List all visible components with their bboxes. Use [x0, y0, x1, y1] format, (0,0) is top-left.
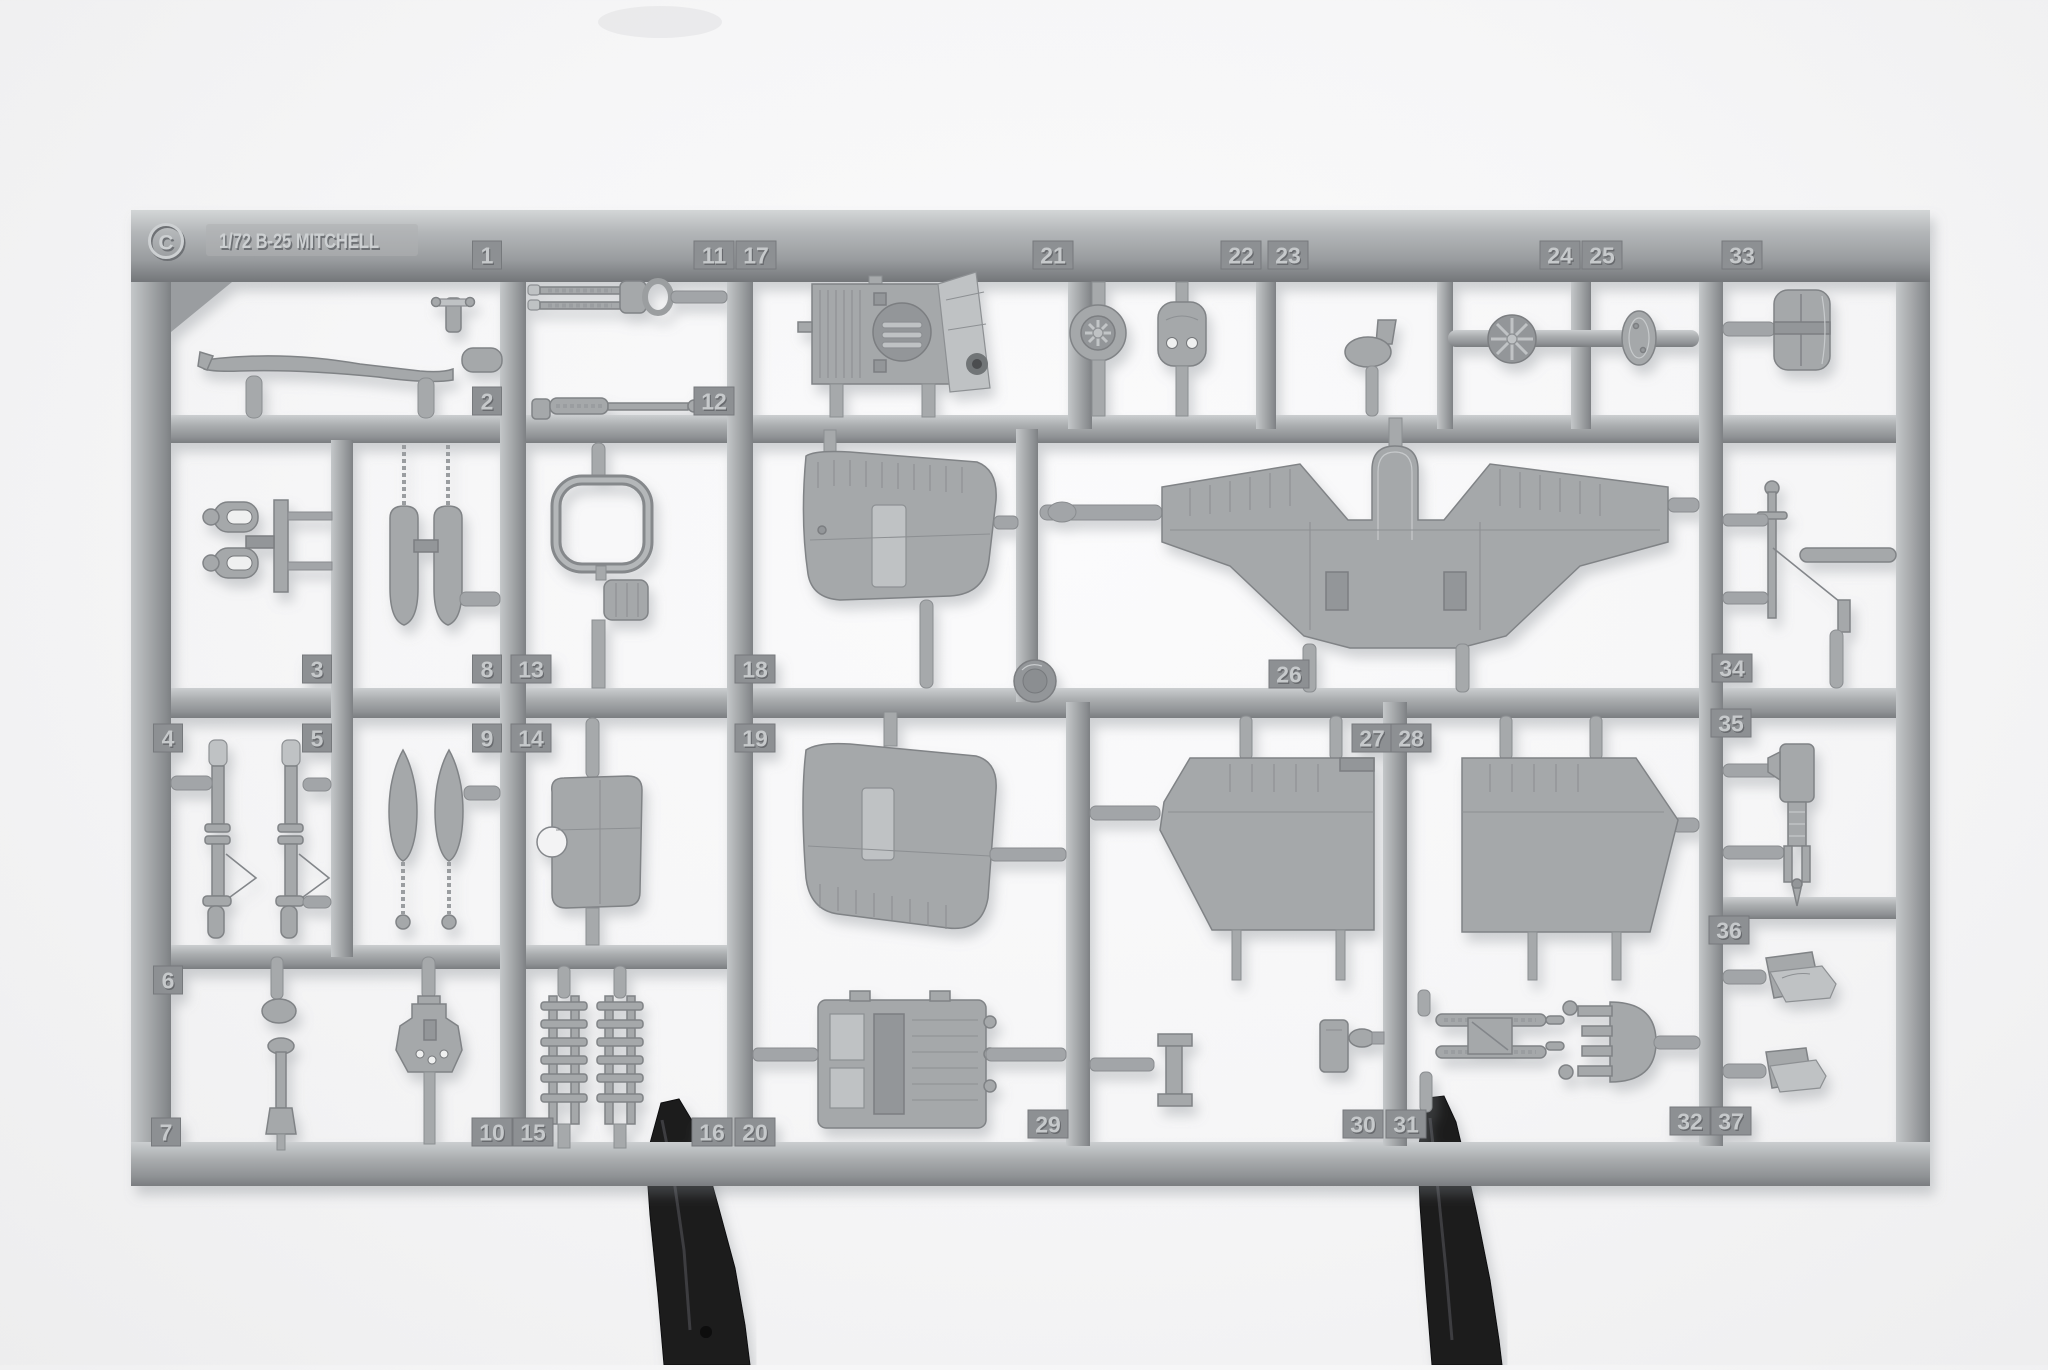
part-number-tab-8: 88	[473, 655, 502, 684]
part-number-tab-32: 3232	[1670, 1107, 1710, 1136]
part-number-tab-14: 1414	[511, 724, 551, 753]
rail-bottom	[131, 1142, 1930, 1186]
part-number-tab-4: 44	[154, 724, 183, 753]
svg-text:32: 32	[1677, 1109, 1703, 1135]
part-25-bulkhead-disc	[1622, 311, 1656, 365]
part-number-tab-18: 1818	[735, 655, 775, 684]
part-36-crew-seat	[1723, 952, 1836, 1002]
rail-vertical-0b	[331, 440, 353, 957]
part-number-tab-3: 33	[303, 655, 332, 684]
svg-text:22: 22	[1228, 243, 1254, 269]
part-17-louvered-box	[798, 272, 990, 417]
svg-text:9: 9	[481, 726, 494, 752]
part-number-tab-36: 3636	[1709, 916, 1749, 945]
svg-text:1: 1	[481, 243, 494, 269]
part-number-tab-17: 1717	[736, 241, 776, 270]
part-number-tab-21: 2121	[1033, 241, 1073, 270]
part-number-tab-22: 2222	[1221, 241, 1261, 270]
svg-text:8: 8	[481, 657, 494, 683]
svg-text:33: 33	[1729, 243, 1755, 269]
part-3-gun-yokes	[203, 500, 332, 592]
part-number-tab-2: 22	[473, 387, 502, 416]
rail-vertical-23	[1437, 282, 1453, 429]
part-27-outer-wing	[1090, 716, 1374, 980]
svg-text:2: 2	[481, 389, 494, 415]
svg-text:26: 26	[1276, 662, 1302, 688]
rail-vertical-4	[1383, 702, 1407, 1146]
rail-vertical-3c	[1066, 702, 1090, 1146]
part-2-antenna-rod	[198, 352, 453, 418]
svg-text:12: 12	[701, 389, 727, 415]
runner-engine-row	[1448, 330, 1699, 347]
title-plate: 1/72 B-25 MITCHELL 1/72 B-25 MITCHELL	[206, 224, 418, 256]
svg-text:19: 19	[742, 726, 768, 752]
part-32-flare-rack	[1559, 1001, 1700, 1082]
part-number-tab-34: 3434	[1712, 654, 1752, 683]
part-number-tab-35: 3535	[1711, 709, 1751, 738]
svg-text:3: 3	[311, 657, 324, 683]
part-number-tab-23: 2323	[1268, 241, 1308, 270]
svg-text:21: 21	[1040, 243, 1066, 269]
part-number-tab-11: 1111	[694, 241, 734, 270]
part-number-tab-20: 2020	[735, 1118, 775, 1147]
part-13-window-frame	[556, 443, 648, 688]
part-number-tab-16: 1616	[692, 1118, 732, 1147]
part-11-twin-machine-gun	[528, 281, 727, 313]
part-number-tab-15: 1515	[513, 1118, 553, 1147]
part-5-gun-barrel	[276, 740, 331, 938]
backdrop-smudge	[598, 6, 722, 38]
part-number-tab-31: 3131	[1386, 1110, 1426, 1139]
part-19-skin-panel	[803, 712, 1066, 929]
part-number-tab-7: 77	[152, 1118, 181, 1147]
svg-text:30: 30	[1350, 1112, 1376, 1138]
part-23-carburetor-intake	[1345, 320, 1396, 416]
part-37-crew-seat	[1723, 1048, 1826, 1092]
part-number-tab-29: 2929	[1028, 1110, 1068, 1139]
svg-text:13: 13	[518, 657, 544, 683]
part-number-tab-25: 2525	[1582, 241, 1622, 270]
rail-vertical-1	[500, 282, 526, 1146]
svg-text:31: 31	[1393, 1112, 1419, 1138]
part-4-gun-barrel	[171, 740, 256, 938]
part-number-tab-5: 55	[303, 724, 332, 753]
part-number-tab-13: 1313	[511, 655, 551, 684]
part-26-wing-centre-section	[1040, 418, 1699, 692]
part-35-tail-gear-strut	[1723, 744, 1814, 906]
svg-text:28: 28	[1398, 726, 1424, 752]
part-number-tab-6: 66	[154, 966, 183, 995]
gate-letter: C	[158, 232, 173, 255]
part-33-armored-seat	[1723, 290, 1830, 370]
svg-text:36: 36	[1716, 918, 1742, 944]
corner-fillet	[171, 282, 232, 332]
part-number-tab-19: 1919	[735, 724, 775, 753]
part-10-gun-mount	[396, 957, 462, 1144]
svg-text:20: 20	[742, 1120, 768, 1146]
part-number-tab-24: 2424	[1540, 241, 1580, 270]
part-number-tab-26: 2626	[1269, 660, 1309, 689]
svg-text:18: 18	[742, 657, 768, 683]
part-1-valve-fitting	[432, 298, 503, 373]
part-9-bombs	[389, 750, 500, 929]
hub-disc	[1014, 660, 1056, 702]
part-31-gun-pack	[1418, 990, 1564, 1112]
part-number-tab-33: 3333	[1722, 241, 1762, 270]
svg-text:25: 25	[1589, 243, 1615, 269]
part-number-tab-30: 3030	[1343, 1110, 1383, 1139]
rail-right-border	[1896, 212, 1930, 1182]
part-29-pylon-bracket	[1090, 1034, 1192, 1106]
rail-left-border	[131, 212, 171, 1182]
part-number-tab-9: 99	[473, 724, 502, 753]
sprue-photo-canvas: C C 1/72 B-25 MITCHELL 1/72 B-25 MITCHEL…	[0, 0, 2048, 1365]
part-24-engine-fan	[1488, 315, 1536, 363]
part-22-cowl-plate	[1158, 282, 1206, 416]
part-number-tab-10: 1010	[472, 1118, 512, 1147]
svg-text:37: 37	[1718, 1109, 1744, 1135]
svg-text:14: 14	[518, 726, 544, 752]
part-18-skin-panel	[803, 430, 1018, 688]
part-number-tab-1: 11	[473, 241, 502, 270]
svg-text:4: 4	[162, 726, 175, 752]
svg-text:15: 15	[520, 1120, 546, 1146]
part-16-bomb-rack	[597, 966, 643, 1148]
svg-text:34: 34	[1719, 656, 1745, 682]
part-30-gear-bracket	[1320, 1020, 1384, 1072]
svg-text:23: 23	[1275, 243, 1301, 269]
part-8-bomb-halves	[390, 445, 500, 625]
svg-text:11: 11	[702, 243, 727, 269]
rail-vertical-24	[1571, 282, 1591, 429]
svg-text:5: 5	[311, 726, 324, 752]
part-14-hatch-panel	[537, 718, 642, 945]
rail-lower-left	[171, 945, 740, 969]
part-number-tab-12: 1212	[694, 387, 734, 416]
rail-vertical-22	[1256, 282, 1276, 429]
part-number-tab-28: 2828	[1391, 724, 1431, 753]
part-7-control-column	[266, 1038, 296, 1150]
svg-text:35: 35	[1718, 711, 1744, 737]
svg-text:24: 24	[1547, 243, 1573, 269]
svg-text:27: 27	[1359, 726, 1385, 752]
part-28-outer-wing	[1462, 716, 1699, 980]
part-number-tab-37: 3737	[1711, 1107, 1751, 1136]
sprue-photo: C C 1/72 B-25 MITCHELL 1/72 B-25 MITCHEL…	[0, 0, 2048, 1370]
svg-text:29: 29	[1035, 1112, 1061, 1138]
part-20-bomb-bay-door	[753, 991, 1066, 1128]
svg-text:16: 16	[699, 1120, 725, 1146]
clip-stand-right	[1418, 1096, 1502, 1365]
svg-text:17: 17	[743, 243, 769, 269]
sprue-title: 1/72 B-25 MITCHELL	[219, 229, 379, 253]
svg-text:7: 7	[160, 1120, 173, 1146]
svg-text:6: 6	[162, 968, 175, 994]
sprue: C C 1/72 B-25 MITCHELL 1/72 B-25 MITCHEL…	[131, 210, 1930, 1186]
part-number-tab-27: 2727	[1352, 724, 1392, 753]
svg-text:10: 10	[479, 1120, 505, 1146]
